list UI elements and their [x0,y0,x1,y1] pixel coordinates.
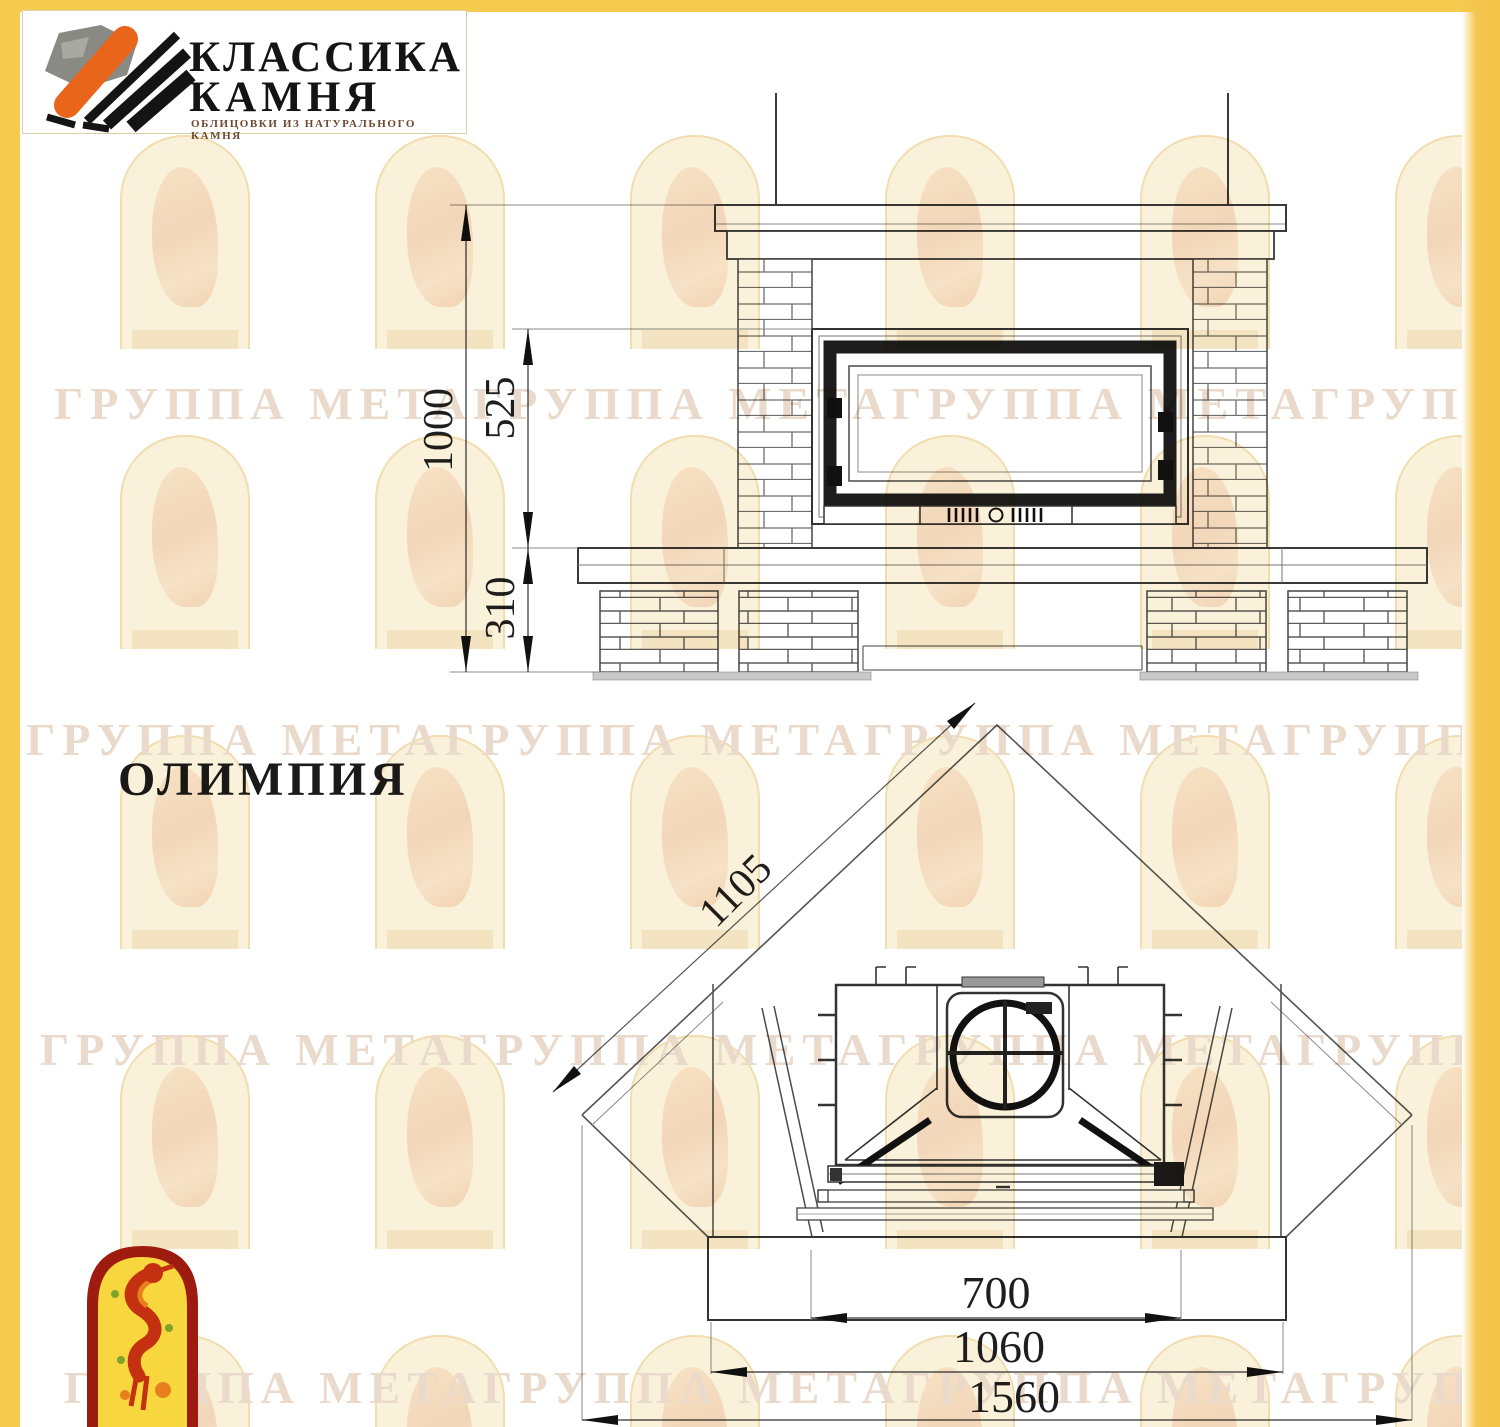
mantel-shelf-lower [727,231,1274,259]
chimney-lines [776,93,1228,206]
door-latch-bottom-right [1158,460,1173,480]
dim-label-310: 310 [478,577,524,640]
dim-total-width: 1560 [582,1371,1412,1425]
left-pilaster-bricks [738,259,812,549]
firebox-insert [812,329,1188,524]
firebox-glass-outer [849,366,1151,481]
dim-hearth-width: 1060 [711,1321,1283,1377]
door-latch-top-right [1158,412,1173,432]
dim-label-1060: 1060 [953,1321,1045,1372]
air-vent-grille [920,506,1072,524]
fireplace-technical-drawing: 1000 525 310 [0,0,1500,1427]
model-name-label: ОЛИМПИЯ [118,752,409,807]
dim-opening-and-bench-height: 525 310 [478,329,533,672]
logo-tagline: ОБЛИЦОВКИ ИЗ НАТУРАЛЬНОГО КАМНЯ [191,118,466,142]
dim-label-1000: 1000 [416,388,462,472]
mantel-shelf-top [715,205,1286,231]
frame-right-bar [1462,0,1500,1427]
company-logo: КЛАССИКА КАМНЯ ОБЛИЦОВКИ ИЗ НАТУРАЛЬНОГО… [22,10,467,134]
meta-group-emblem [85,1240,200,1427]
hearth-bench-slab [578,548,1427,583]
right-pilaster-bricks [1193,259,1267,549]
front-elevation-drawing: 1000 525 310 [416,93,1427,680]
stone-logo-graphic [31,13,196,133]
bench-brick-piers [593,591,1418,680]
dim-label-525: 525 [478,377,524,440]
door-hinge-bottom-left [827,466,842,486]
insert-plan [797,967,1213,1220]
dim-total-height: 1000 [416,205,471,672]
plan-view-drawing: 1105 700 1060 15 [553,703,1412,1425]
bench-recess [863,646,1142,670]
dim-label-1105: 1105 [690,845,781,936]
frame-left-bar [0,0,20,1427]
dim-label-700: 700 [962,1267,1031,1318]
door-hinge-top-left [827,398,842,418]
logo-title-line2: КАМНЯ [189,73,381,122]
page: 1000 525 310 [0,0,1500,1427]
dim-label-1560: 1560 [968,1371,1060,1422]
